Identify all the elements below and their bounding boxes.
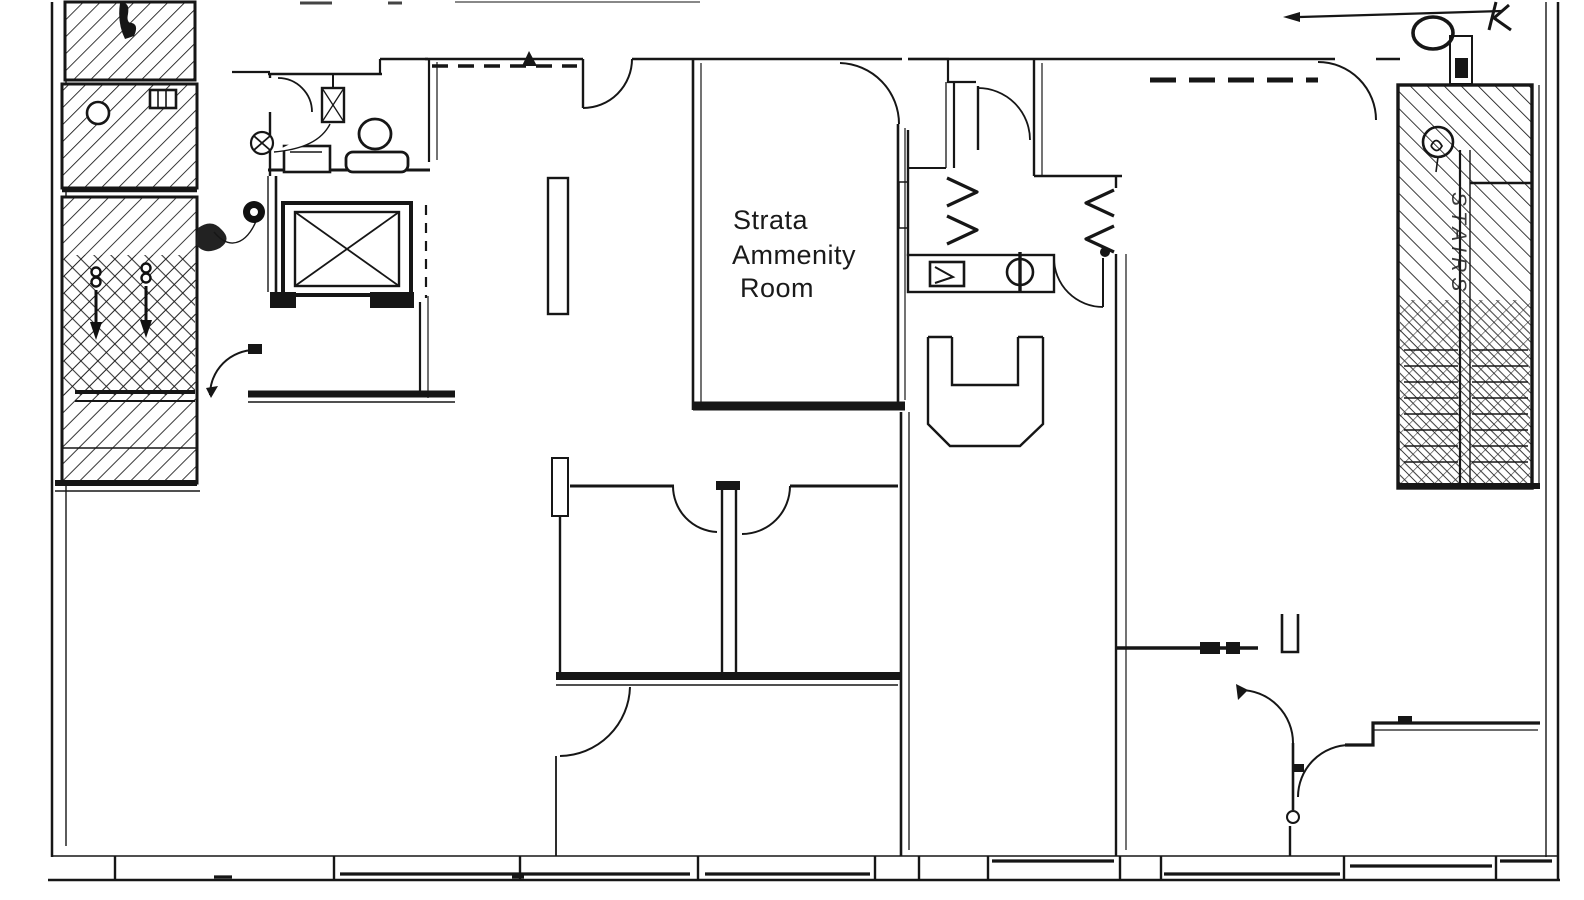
- door-swing-arc: [278, 78, 312, 112]
- door-swing-arc: [1054, 258, 1103, 307]
- door-swing-arc: [1318, 62, 1376, 120]
- door-jamb: [552, 458, 568, 516]
- door-hinge-dot: [1100, 247, 1110, 257]
- door-chevron: [947, 178, 977, 206]
- stair-door-slot: [1450, 36, 1472, 84]
- stair-rubble-texture: [1400, 300, 1530, 486]
- sink-icon: [930, 262, 964, 286]
- door-swing-arc: [840, 63, 899, 124]
- wall-column: [548, 178, 568, 314]
- door-chevron: [1086, 190, 1114, 216]
- door-stop-circle: [1287, 811, 1299, 823]
- floorplan-sheet: Strata Ammenity Room: [0, 0, 1584, 900]
- mop-sink: [928, 337, 1043, 446]
- door-swing-arc: [1240, 690, 1293, 743]
- washroom: [243, 74, 430, 223]
- door-jamb: [1226, 642, 1240, 654]
- wall-return: [1282, 614, 1298, 652]
- swing-arrowhead: [1236, 684, 1248, 700]
- stairwell-label: STAIRS: [1447, 192, 1470, 296]
- wall-fixture-blob: [243, 201, 265, 223]
- door-chevron: [1086, 226, 1114, 252]
- amenity-label-line2: Ammenity: [732, 240, 856, 270]
- left-stair-core: [55, 2, 258, 491]
- wall-dispenser-icon: [274, 74, 344, 152]
- wall-stub: [270, 292, 296, 308]
- toilet-icon: [87, 102, 109, 124]
- leader-line: [1300, 11, 1502, 17]
- bottom-right-rooms: [1116, 614, 1540, 856]
- sidelite: [899, 182, 908, 228]
- handwritten-mark: [1489, 2, 1511, 30]
- stair-hatch-left-top: [65, 2, 195, 80]
- sink-icon: [150, 90, 176, 108]
- door-jamb: [1294, 764, 1304, 772]
- middle-rooms: [552, 458, 901, 856]
- door-swing-arc: [673, 486, 717, 532]
- door-swing-arc: [742, 486, 790, 534]
- toilet-icon: [346, 119, 408, 172]
- room-left-middle: [206, 296, 455, 402]
- cropped-annotation-marks: [300, 2, 700, 3]
- window-band: [48, 856, 1560, 880]
- elevator: [268, 176, 426, 308]
- door-swing-arc: [210, 350, 255, 395]
- wall-stub: [370, 292, 414, 308]
- floor-plan-canvas: Strata Ammenity Room: [0, 0, 1584, 900]
- wall-stub: [1398, 716, 1412, 724]
- swing-arrowhead: [206, 386, 218, 398]
- vestibule: [899, 59, 1122, 446]
- amenity-label-line3: Room: [740, 273, 814, 303]
- door-chevron: [947, 216, 977, 244]
- door-swing-arc: [560, 687, 630, 756]
- revision-cloud-mark: [196, 223, 227, 251]
- glazing-lines: [214, 861, 1552, 877]
- door-swing-arc: [978, 88, 1030, 140]
- door-jamb: [1200, 642, 1220, 654]
- exhaust-fan-icon: [251, 132, 273, 154]
- door-swing-arc: [583, 59, 632, 108]
- door-swing-arc: [1298, 745, 1350, 797]
- stair-rubble-texture: [64, 255, 195, 395]
- keynote-bubble: [1413, 17, 1453, 49]
- amenity-room-label: Strata Ammenity Room: [732, 205, 856, 303]
- floor-drain-icon: [1007, 252, 1033, 292]
- window-mullions: [115, 856, 1496, 880]
- top-walls: [232, 51, 1400, 162]
- amenity-label-line1: Strata: [733, 205, 809, 235]
- leader-arrowhead: [1283, 12, 1300, 22]
